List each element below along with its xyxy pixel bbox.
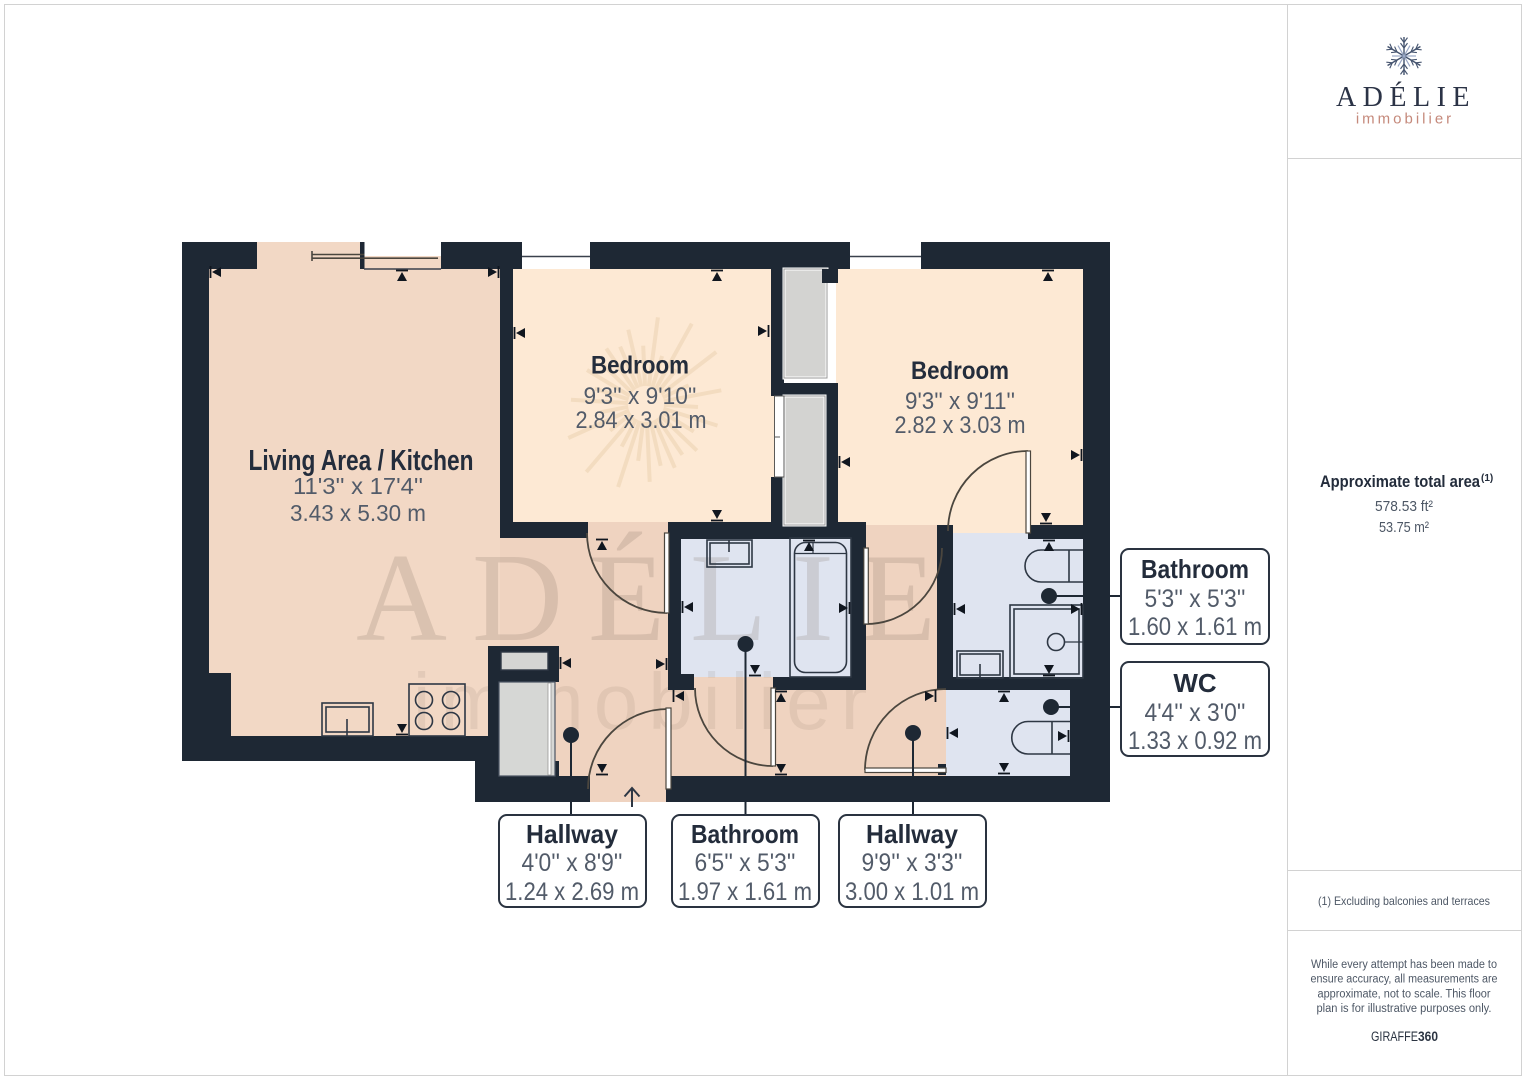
svg-text:578.53 ft²: 578.53 ft² bbox=[1375, 498, 1433, 515]
svg-text:ADÉLIE: ADÉLIE bbox=[1336, 82, 1476, 113]
svg-text:ADÉLIE: ADÉLIE bbox=[356, 529, 961, 668]
svg-text:plan is for illustrative purpo: plan is for illustrative purposes only. bbox=[1317, 1003, 1492, 1015]
svg-text:5'3'' x 5'3'': 5'3'' x 5'3'' bbox=[1145, 585, 1246, 613]
svg-text:1.97 x 1.61 m: 1.97 x 1.61 m bbox=[678, 878, 812, 906]
svg-text:4'0'' x 8'9'': 4'0'' x 8'9'' bbox=[522, 849, 623, 877]
svg-text:9'9'' x 3'3'': 9'9'' x 3'3'' bbox=[862, 849, 963, 877]
svg-text:(1) Excluding balconies and te: (1) Excluding balconies and terraces bbox=[1318, 894, 1490, 908]
svg-text:While every attempt has been m: While every attempt has been made to bbox=[1311, 959, 1497, 971]
svg-text:Bathroom: Bathroom bbox=[1141, 554, 1249, 584]
svg-text:53.75 m²: 53.75 m² bbox=[1379, 519, 1429, 536]
svg-text:6'5'' x 5'3'': 6'5'' x 5'3'' bbox=[695, 849, 796, 877]
svg-text:(1): (1) bbox=[1481, 473, 1493, 484]
svg-text:1.24 x 2.69 m: 1.24 x 2.69 m bbox=[505, 878, 639, 906]
svg-text:Approximate total area: Approximate total area bbox=[1320, 473, 1481, 491]
svg-text:360: 360 bbox=[1418, 1029, 1438, 1044]
svg-text:11'3'' x 17'4'': 11'3'' x 17'4'' bbox=[293, 473, 423, 499]
svg-text:Bedroom: Bedroom bbox=[591, 352, 689, 380]
svg-text:3.43 x 5.30 m: 3.43 x 5.30 m bbox=[290, 500, 426, 526]
svg-text:immobilier: immobilier bbox=[1356, 111, 1454, 128]
svg-text:1.33 x 0.92 m: 1.33 x 0.92 m bbox=[1128, 727, 1262, 755]
svg-text:ensure accuracy, all measureme: ensure accuracy, all measurements are bbox=[1311, 974, 1498, 986]
svg-text:4'4'' x 3'0'': 4'4'' x 3'0'' bbox=[1145, 699, 1246, 727]
svg-text:Bathroom: Bathroom bbox=[691, 819, 799, 849]
svg-text:3.00 x 1.01 m: 3.00 x 1.01 m bbox=[845, 878, 979, 906]
svg-text:2.84 x 3.01 m: 2.84 x 3.01 m bbox=[576, 407, 707, 434]
svg-text:9'3'' x 9'11'': 9'3'' x 9'11'' bbox=[905, 388, 1015, 415]
svg-text:approximate, not to scale. Thi: approximate, not to scale. This floor bbox=[1318, 988, 1491, 1000]
svg-text:GIRAFFE: GIRAFFE bbox=[1371, 1029, 1418, 1044]
svg-text:1.60 x 1.61 m: 1.60 x 1.61 m bbox=[1128, 613, 1262, 641]
svg-text:Hallway: Hallway bbox=[526, 819, 619, 849]
svg-text:WC: WC bbox=[1173, 668, 1217, 698]
svg-text:Hallway: Hallway bbox=[866, 819, 959, 849]
svg-text:immobilier: immobilier bbox=[413, 657, 878, 746]
svg-text:Bedroom: Bedroom bbox=[911, 357, 1009, 385]
svg-text:9'3'' x 9'10'': 9'3'' x 9'10'' bbox=[584, 383, 697, 410]
svg-text:2.82 x 3.03 m: 2.82 x 3.03 m bbox=[895, 412, 1026, 439]
